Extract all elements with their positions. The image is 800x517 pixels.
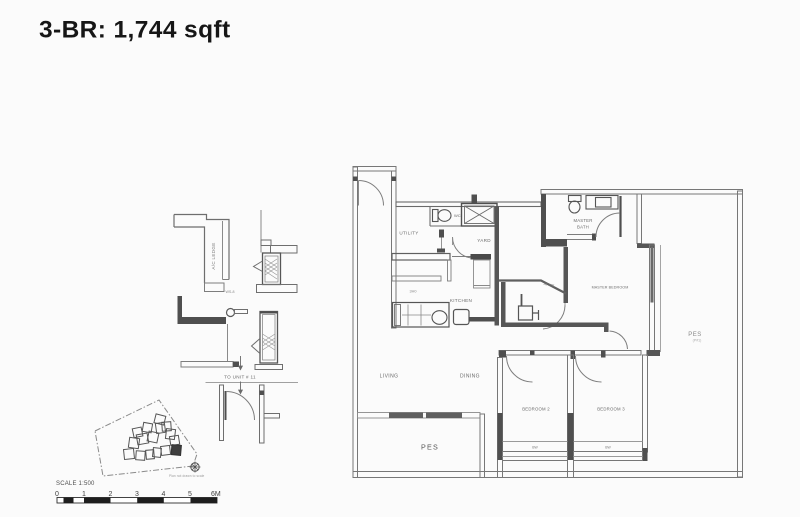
svg-text:BEDROOM 2: BEDROOM 2	[522, 407, 550, 412]
svg-text:SCALE 1:500: SCALE 1:500	[56, 481, 95, 487]
svg-text:Plan not drawn to scale: Plan not drawn to scale	[169, 474, 205, 478]
svg-text:WC: WC	[454, 213, 461, 218]
svg-text:WS-8: WS-8	[226, 290, 235, 294]
svg-text:LIVING: LIVING	[380, 374, 399, 380]
svg-text:1: 1	[82, 491, 86, 498]
svg-text:BEDROOM 3: BEDROOM 3	[597, 407, 625, 412]
svg-text:BW: BW	[605, 446, 611, 450]
svg-text:MASTER BEDROOM: MASTER BEDROOM	[592, 286, 629, 290]
svg-text:3: 3	[135, 491, 139, 498]
svg-text:BATH: BATH	[577, 225, 589, 230]
svg-text:YARD: YARD	[477, 238, 491, 243]
svg-text:0: 0	[55, 491, 59, 498]
svg-text:KITCHEN: KITCHEN	[450, 298, 472, 303]
svg-text:2: 2	[109, 491, 113, 498]
svg-text:A/C LEDGE: A/C LEDGE	[211, 242, 216, 269]
svg-text:3H0: 3H0	[410, 290, 417, 294]
svg-text:5: 5	[188, 491, 192, 498]
svg-text:6M: 6M	[211, 491, 221, 498]
svg-text:BW: BW	[532, 446, 538, 450]
svg-text:UTILITY: UTILITY	[399, 231, 418, 236]
svg-text:DINING: DINING	[460, 374, 480, 380]
svg-text:TO UNIT # 11: TO UNIT # 11	[224, 375, 256, 380]
svg-text:4: 4	[162, 491, 166, 498]
svg-text:MASTER: MASTER	[573, 218, 592, 223]
svg-text:PES: PES	[688, 332, 702, 338]
svg-text:(P#1): (P#1)	[693, 339, 702, 343]
svg-text:3-BR: 1,744 sqft: 3-BR: 1,744 sqft	[39, 17, 231, 44]
svg-text:PES: PES	[421, 443, 439, 452]
